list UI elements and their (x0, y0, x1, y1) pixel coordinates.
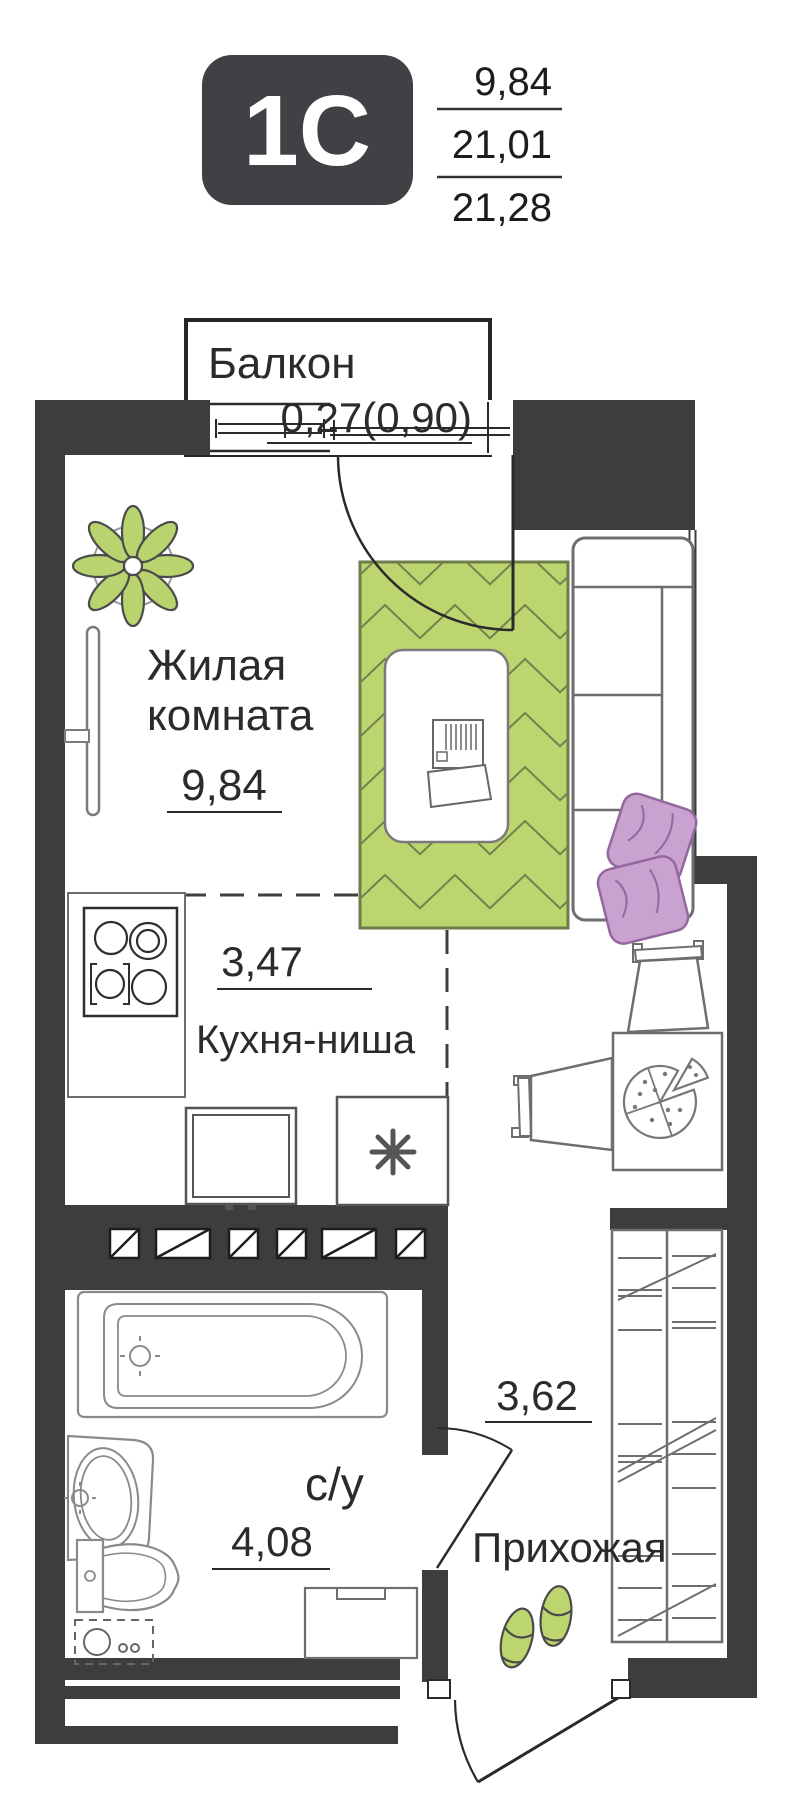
room-area-balcony: 0,27(0,90) (281, 394, 472, 441)
wardrobe (612, 1230, 722, 1642)
wall-right (727, 856, 757, 1660)
entry-door (428, 1680, 630, 1782)
wall-top-right (513, 400, 695, 530)
slippers-icon (495, 1584, 575, 1671)
chair-icon (628, 941, 708, 1032)
header-area-no-balcony: 21,01 (452, 123, 552, 167)
wall-bath-bottom-edge (35, 1686, 400, 1699)
room-label-living-1: Жилая (147, 641, 286, 690)
room-area-kitchen: 3,47 (221, 938, 303, 985)
header-area-living: 9,84 (474, 60, 552, 104)
chair-icon (512, 1058, 612, 1150)
wardrobe-top-wall (610, 1208, 727, 1230)
floorplan-canvas: 1C 9,84 21,01 21,28 (0, 0, 800, 1806)
room-label-living-2: комната (147, 691, 314, 740)
header-area-total: 21,28 (452, 186, 552, 230)
room-label-balcony: Балкон (208, 339, 356, 388)
plan-type-badge-label: 1C (243, 75, 371, 187)
room-label-hallway: Прихожая (472, 1524, 667, 1571)
wall-left (35, 400, 65, 1744)
wall-bottom-right (628, 1658, 757, 1698)
room-label-bathroom: с/у (305, 1458, 364, 1510)
wall-bath-right-upper (422, 1290, 448, 1455)
wall-bath-right-lower (422, 1570, 448, 1682)
bathtub-icon (78, 1292, 387, 1417)
room-area-hallway: 3,62 (496, 1372, 578, 1419)
fridge-icon (337, 1097, 448, 1205)
room-area-living: 9,84 (181, 761, 267, 810)
header: 1C 9,84 21,01 21,28 (202, 55, 562, 230)
snowflake-icon (372, 1131, 414, 1173)
plant-icon (73, 506, 193, 626)
tablet-icon (428, 720, 491, 807)
wall-bath-bottom (35, 1658, 400, 1680)
floorplan-page: 1C 9,84 21,01 21,28 (0, 0, 800, 1806)
room-label-kitchen: Кухня-ниша (196, 1018, 416, 1062)
tv-icon (65, 627, 99, 815)
wall-top-left (35, 400, 210, 455)
washing-machine-icon (186, 1108, 296, 1210)
room-area-bathroom: 4,08 (231, 1518, 313, 1565)
shoe-cabinet (305, 1588, 417, 1658)
washer-dashed-icon (75, 1620, 153, 1664)
stove-icon (84, 908, 177, 1016)
wall-outer-bottom (35, 1726, 398, 1744)
toilet-icon (77, 1540, 179, 1612)
